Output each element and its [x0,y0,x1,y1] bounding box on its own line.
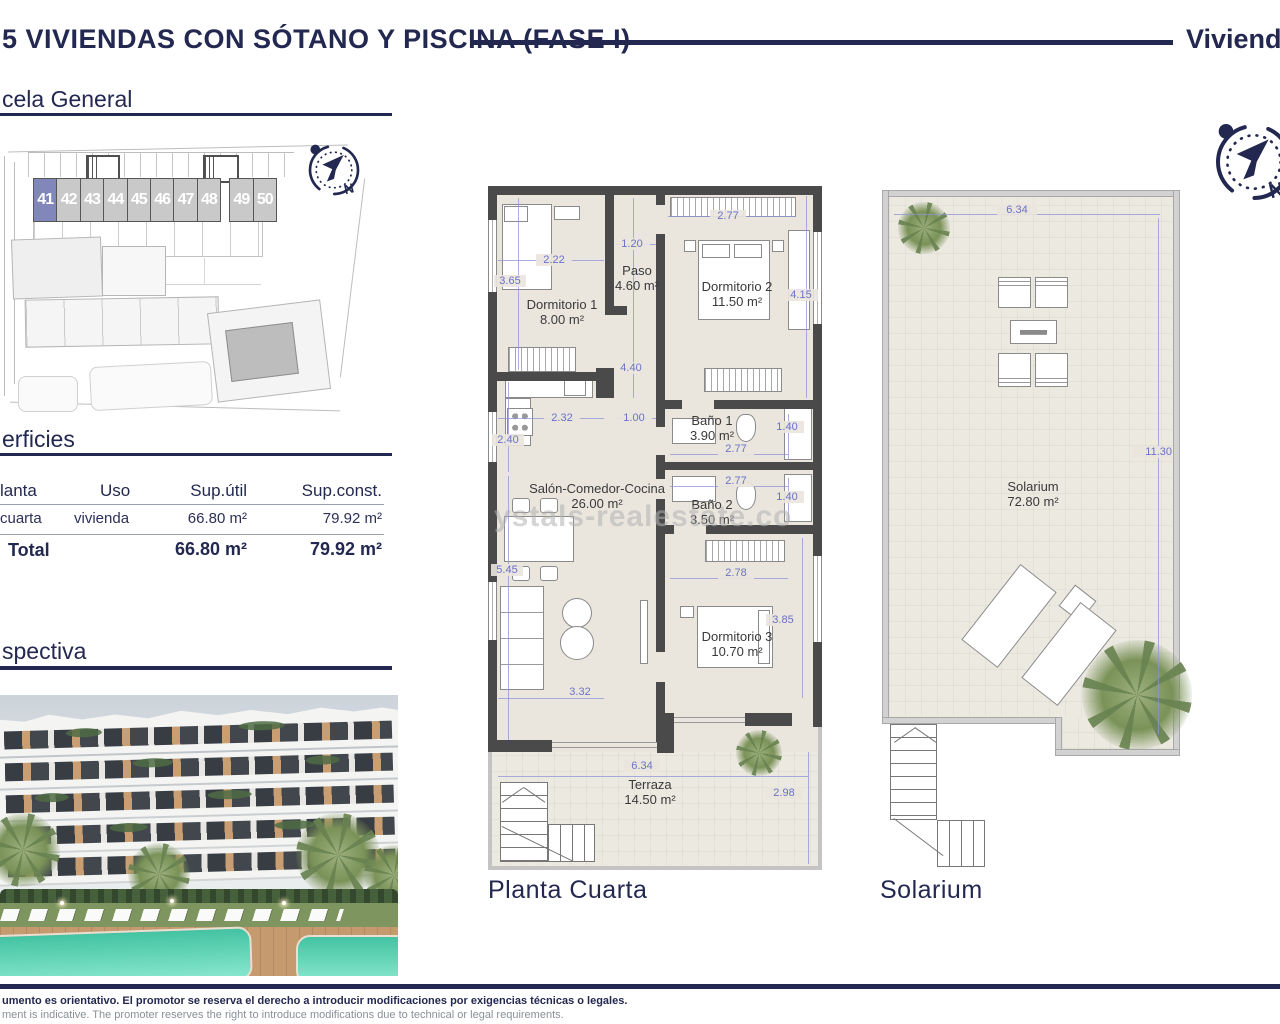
watermark-text: ystals-realestate.co [494,500,793,534]
dim-salon-width: 3.32 [562,686,598,698]
room-label-dormitorio-1: Dormitorio 1 8.00 m² [512,298,612,328]
sofa [500,586,544,690]
dim-dorm3-height: 3.85 [766,614,800,626]
room-area: 10.70 m² [687,645,787,660]
wall [488,186,497,220]
section-rule-parcela [0,113,392,116]
site-building-outline [102,246,166,296]
terrace-stairs [548,824,595,862]
room-name: Dormitorio 3 [687,630,787,645]
patio-chair [998,277,1031,308]
site-lower-outline [89,361,213,411]
room-name: Dormitorio 1 [512,298,612,313]
dim-terraza-height: 2.98 [766,787,802,799]
table-rule [0,534,384,535]
wall [657,713,674,753]
section-heading-superficies: erficies [2,426,75,453]
dresser [704,368,782,392]
room-label-dormitorio-2: Dormitorio 2 11.50 m² [687,280,787,310]
site-road-line [340,179,365,378]
dim-dorm1-height: 3.65 [494,275,526,287]
dim-paso-height: 4.40 [614,362,648,374]
swimming-pool [0,926,253,976]
dim-bano1-width: 2.77 [718,443,754,455]
dim-line [1158,218,1159,734]
site-building-row [25,296,220,347]
sun-lounger-row [0,909,344,921]
sliding-door [552,742,657,743]
solarium-wall [1055,749,1180,756]
compass-icon: N [302,138,366,202]
patio-chair [998,353,1031,387]
solarium-wall [882,190,889,724]
interior-wall [656,409,665,427]
table-cell-sup-util: 66.80 m² [150,510,247,527]
interior-wall [656,534,665,652]
dim-hall-width: 1.00 [616,412,652,424]
window [813,556,822,642]
floor-plan-planta-cuarta: 2.77 4.15 1.20 2.22 3.65 4.40 2.32 1.00 … [488,186,822,876]
nightstand [554,206,580,220]
site-unit-44: 44 [104,178,127,222]
wall [813,186,822,232]
table-total-sup-const: 79.92 m² [262,539,382,560]
palm-tree [898,202,950,254]
nightstand [772,240,784,252]
garden-lamp [60,901,64,905]
site-unit-42: 42 [57,178,80,222]
interior-wall [497,372,605,381]
terrace-wall [818,727,822,870]
wall [813,642,822,727]
nightstand [680,606,694,618]
page-title-right: Vivienda [1186,24,1280,55]
site-unit-48: 48 [198,178,221,222]
section-rule-perspectiva [0,666,392,670]
room-label-solarium: Solarium 72.80 m² [978,480,1088,510]
table-header-uso: Uso [100,481,130,501]
interior-wall [656,455,665,479]
room-area: 3.90 m² [672,429,752,444]
dim-terraza-width: 6.34 [624,760,660,772]
site-road-line [4,156,5,396]
garden-lamp [170,899,174,903]
wall [488,292,497,412]
interior-wall [665,462,822,470]
wall [488,186,822,195]
interior-wall [656,400,682,409]
room-name: Solarium [978,480,1088,495]
dim-line [808,752,809,864]
dim-bano2-width: 2.77 [718,475,754,487]
coffee-table [562,598,592,628]
room-label-bano-1: Baño 1 3.90 m² [672,414,752,444]
site-unit-45: 45 [128,178,151,222]
wall [488,640,497,752]
site-unit-41: 41 [33,178,57,222]
dim-solarium-width: 6.34 [997,204,1037,216]
room-area: 14.50 m² [600,793,700,808]
site-pool-house [225,322,299,382]
footer-rule [0,984,1280,989]
patio-table [1010,320,1057,344]
room-label-dormitorio-3: Dormitorio 3 10.70 m² [687,630,787,660]
window [813,232,822,324]
dim-salon-height: 5.45 [491,564,523,576]
dim-line [802,538,803,698]
dim-kitchen-width: 2.32 [544,412,580,424]
dim-dorm2-width: 2.77 [710,210,746,222]
table-cell-planta: cuarta [0,510,42,527]
dim-line [508,382,509,472]
site-unit-50: 50 [254,178,277,222]
patio-chair [1035,277,1068,308]
table-header-sup-const: Sup.const. [262,481,382,501]
room-label-terraza: Terraza 14.50 m² [600,778,700,808]
pillow [702,244,730,258]
sliding-door [674,717,745,718]
wall [813,324,822,556]
palm-tree [736,730,782,776]
site-lower-outline [18,376,78,412]
section-rule-superficies [0,453,392,456]
kitchen-sink [564,380,586,396]
coffee-table [560,626,594,660]
plan-caption-planta-cuarta: Planta Cuarta [488,876,647,905]
footer-disclaimer-en: ment is indicative. The promoter reserve… [2,1009,564,1021]
site-unit-46: 46 [151,178,174,222]
interior-wall [656,195,665,205]
dim-line [498,698,604,699]
site-unit-49: 49 [229,178,253,222]
section-heading-perspectiva: spectiva [2,638,86,665]
site-unit-43: 43 [81,178,104,222]
room-name: Paso [607,264,667,279]
site-unit-row: 41 42 43 44 45 46 47 48 49 50 [33,178,277,222]
brochure-page: { "colors":{"navy":"#232850","dim_blue":… [0,0,1280,1024]
room-name: Terraza [600,778,700,793]
table-rule [0,504,384,505]
palm-tree [1082,640,1192,750]
site-unit-47: 47 [174,178,197,222]
interior-wall [596,368,614,398]
table-cell-sup-const: 79.92 m² [262,510,382,527]
title-rule [473,40,1173,45]
wall [490,740,552,752]
table-header-sup-util: Sup.útil [150,481,247,501]
patio-chair [1035,353,1068,387]
pillow [734,244,762,258]
solarium-wall [882,717,1062,724]
solarium-stairs [937,820,985,867]
section-heading-parcela: cela General [2,86,132,113]
wall [745,713,792,726]
room-area: 4.60 m² [607,279,667,294]
swimming-pool [296,935,398,976]
dim-bano1-height: 1.40 [770,421,804,433]
dim-dorm2-height: 4.15 [784,289,818,301]
room-area: 8.00 m² [512,313,612,328]
room-name: Salón-Comedor-Cocina [507,482,687,497]
dim-kitchen-height: 2.40 [492,434,524,446]
sliding-door [674,722,745,723]
window [488,582,497,640]
site-parking-strip [28,152,294,177]
room-area: 11.50 m² [687,295,787,310]
plan-caption-solarium: Solarium [880,876,983,905]
dim-paso-width: 1.20 [614,238,650,250]
terrace-wall [488,866,822,870]
table-total-label: Total [8,540,50,561]
room-name: Baño 1 [672,414,752,429]
perspective-render [0,695,398,976]
room-area: 72.80 m² [978,495,1088,510]
interior-wall [656,234,665,400]
radiator [705,540,785,562]
tv-unit [640,600,648,664]
footer-disclaimer-es: umento es orientativo. El promotor se re… [2,995,627,1007]
pillow [504,206,528,222]
floor-plan-solarium: 6.34 11.30 Solarium 72.80 m² [882,190,1182,880]
room-label-paso: Paso 4.60 m² [607,264,667,294]
stove [507,408,533,436]
garden-lamp [282,901,286,905]
table-total-sup-util: 66.80 m² [150,539,247,560]
dim-dorm1-width: 2.22 [536,254,572,266]
dim-dorm3-width: 2.78 [718,567,754,579]
nightstand [684,240,696,252]
compass-north-label: N [1267,179,1280,204]
table-header-planta: lanta [0,481,37,501]
sliding-door [552,747,657,748]
terrace-wall [488,752,492,870]
dining-chair [540,566,558,581]
site-building-outline [11,236,103,299]
room-name: Dormitorio 2 [687,280,787,295]
table-cell-uso: vivienda [74,510,129,527]
terrace-stairs [500,782,548,862]
solarium-wall [882,190,1180,197]
dim-solarium-height: 11.30 [1132,446,1172,458]
compass-icon: N [1206,114,1280,210]
stair-diagonal [893,818,943,856]
interior-wall [714,400,822,409]
